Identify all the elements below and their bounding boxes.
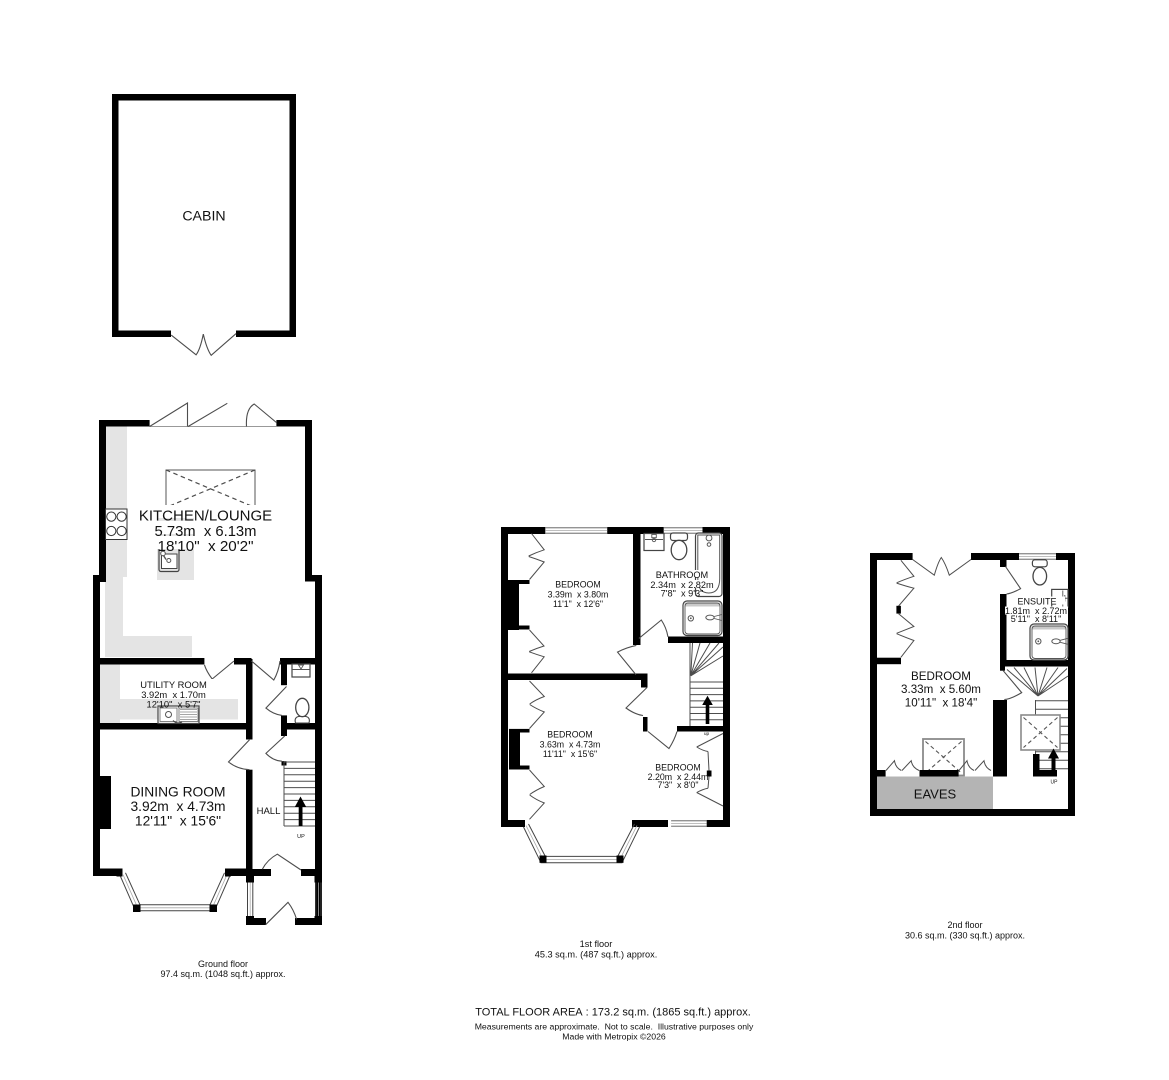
svg-text:DINING ROOM: DINING ROOM	[130, 785, 225, 800]
svg-text:up: up	[704, 732, 710, 737]
svg-text:TOTAL FLOOR AREA : 173.2 sq.m.: TOTAL FLOOR AREA : 173.2 sq.m. (1865 sq.…	[475, 1007, 751, 1019]
svg-text:Ground floor: Ground floor	[198, 959, 248, 969]
svg-text:11'11" x 15'6": 11'11" x 15'6"	[543, 749, 597, 759]
svg-text:KITCHEN/LOUNGE: KITCHEN/LOUNGE	[139, 508, 272, 525]
svg-text:3.33m x 5.60m: 3.33m x 5.60m	[901, 683, 981, 696]
svg-text:7'8" x 9'3": 7'8" x 9'3"	[661, 588, 704, 598]
svg-text:11'1" x 12'6": 11'1" x 12'6"	[553, 599, 603, 609]
svg-text:BEDROOM: BEDROOM	[555, 580, 600, 590]
svg-text:BEDROOM: BEDROOM	[911, 670, 971, 683]
svg-text:UP: UP	[297, 834, 305, 840]
svg-text:2nd floor: 2nd floor	[947, 920, 982, 930]
svg-text:12'10" x 5'7": 12'10" x 5'7"	[146, 699, 200, 710]
svg-text:Measurements are approximate.: Measurements are approximate. Not to sca…	[475, 1021, 754, 1031]
svg-text:12'11" x 15'6": 12'11" x 15'6"	[135, 813, 221, 828]
svg-text:BEDROOM: BEDROOM	[547, 730, 592, 740]
svg-text:EAVES: EAVES	[914, 787, 957, 802]
svg-text:3.63m x 4.73m: 3.63m x 4.73m	[540, 740, 601, 750]
svg-text:10'11" x 18'4": 10'11" x 18'4"	[905, 696, 977, 709]
svg-text:ENSUITE: ENSUITE	[1017, 596, 1056, 606]
svg-text:3.39m x 3.80m: 3.39m x 3.80m	[548, 590, 609, 600]
svg-text:1st floor: 1st floor	[580, 939, 613, 949]
svg-text:5'11" x 8'11": 5'11" x 8'11"	[1011, 614, 1062, 624]
svg-text:BATHROOM: BATHROOM	[656, 570, 708, 580]
svg-text:UP: UP	[1051, 780, 1059, 786]
svg-text:30.6 sq.m. (330 sq.ft.) approx: 30.6 sq.m. (330 sq.ft.) approx.	[905, 931, 1025, 941]
svg-text:CABIN: CABIN	[182, 208, 225, 224]
svg-text:3.92m x 4.73m: 3.92m x 4.73m	[130, 799, 225, 814]
svg-text:HALL: HALL	[257, 806, 281, 817]
svg-text:18'10" x 20'2": 18'10" x 20'2"	[158, 538, 254, 555]
svg-text:45.3 sq.m. (487 sq.ft.) approx: 45.3 sq.m. (487 sq.ft.) approx.	[535, 950, 658, 960]
svg-text:97.4 sq.m. (1048 sq.ft.) appro: 97.4 sq.m. (1048 sq.ft.) approx.	[160, 969, 285, 979]
svg-text:Made with Metropix ©2026: Made with Metropix ©2026	[562, 1032, 666, 1042]
svg-text:7'3" x 8'0": 7'3" x 8'0"	[658, 780, 699, 790]
